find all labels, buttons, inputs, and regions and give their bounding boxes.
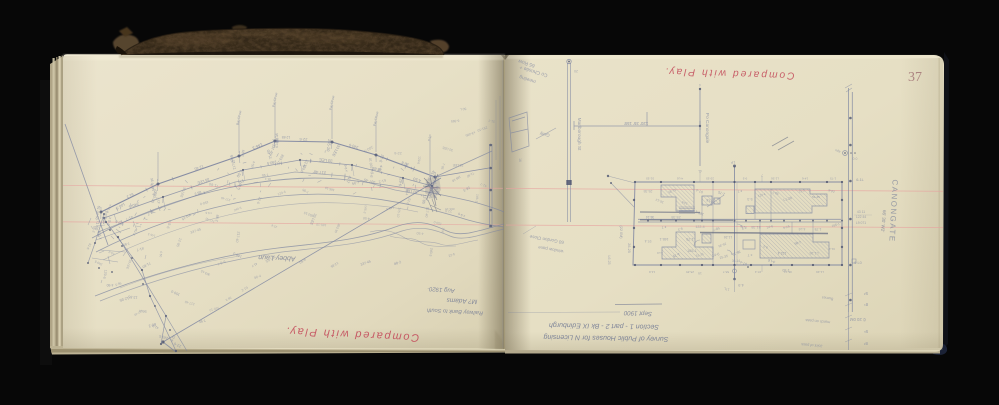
svg-text:L1-26: L1-26 bbox=[809, 251, 818, 255]
svg-text:1-75: 1-75 bbox=[814, 227, 821, 231]
svg-text:25-35: 25-35 bbox=[706, 177, 714, 181]
svg-text:16: 16 bbox=[518, 158, 522, 162]
svg-text:37: 37 bbox=[908, 70, 922, 85]
svg-text:165-1: 165-1 bbox=[687, 249, 697, 253]
svg-text:26-25: 26-25 bbox=[627, 243, 631, 253]
svg-text:25-35: 25-35 bbox=[686, 270, 694, 274]
svg-text:122-4: 122-4 bbox=[778, 251, 787, 255]
svg-text:L1-26: L1-26 bbox=[816, 270, 824, 274]
svg-text:x 7: x 7 bbox=[662, 225, 667, 229]
svg-text:31-2: 31-2 bbox=[829, 247, 835, 251]
svg-text:22·6: 22·6 bbox=[299, 137, 308, 142]
svg-text:8³: 8³ bbox=[864, 341, 868, 346]
svg-text:4-9: 4-9 bbox=[738, 283, 744, 287]
svg-text:L6 25: L6 25 bbox=[607, 256, 611, 265]
svg-text:51-35: 51-35 bbox=[812, 195, 820, 199]
svg-text:50 L: 50 L bbox=[460, 107, 467, 112]
svg-text:22·6: 22·6 bbox=[445, 209, 452, 214]
svg-text:51-35: 51-35 bbox=[646, 177, 654, 181]
svg-text:33 LEE: 33 LEE bbox=[452, 163, 463, 167]
svg-text:Sept 1900: Sept 1900 bbox=[623, 309, 652, 317]
svg-text:19: 19 bbox=[698, 271, 702, 275]
svg-text:120' 35' 155': 120' 35' 155' bbox=[624, 121, 649, 126]
svg-text:6-395: 6-395 bbox=[451, 119, 460, 124]
svg-text:1P: 1P bbox=[730, 160, 735, 164]
svg-text:5⁵: 5⁵ bbox=[864, 329, 868, 334]
svg-text:4-L6: 4-L6 bbox=[677, 177, 683, 181]
svg-text:4-L6: 4-L6 bbox=[799, 227, 806, 231]
svg-text:1·40: 1·40 bbox=[782, 268, 789, 272]
svg-text:96·4: 96·4 bbox=[265, 177, 271, 181]
svg-text:9-3: 9-3 bbox=[747, 197, 752, 201]
svg-text:4-L6: 4-L6 bbox=[657, 251, 663, 255]
svg-text:x 7: x 7 bbox=[738, 189, 742, 193]
svg-text:25-35: 25-35 bbox=[644, 189, 653, 193]
svg-text:122 44: 122 44 bbox=[856, 215, 866, 219]
svg-text:4: 4 bbox=[699, 83, 701, 87]
svg-text:58-7: 58-7 bbox=[723, 270, 729, 274]
svg-text:97-4: 97-4 bbox=[755, 270, 761, 274]
svg-text:122-4: 122-4 bbox=[695, 225, 704, 229]
svg-text:Marlborough St: Marlborough St bbox=[576, 118, 582, 151]
svg-text:6-1L: 6-1L bbox=[856, 178, 864, 182]
svg-text:L9 071: L9 071 bbox=[856, 221, 866, 225]
svg-text:25-35: 25-35 bbox=[671, 215, 680, 219]
svg-text:1-75: 1-75 bbox=[830, 177, 836, 181]
svg-text:4·50: 4·50 bbox=[416, 231, 423, 236]
svg-text:165-1: 165-1 bbox=[659, 237, 668, 241]
svg-text:22·6: 22·6 bbox=[394, 151, 402, 155]
svg-text:5³: 5³ bbox=[864, 291, 868, 296]
svg-text:12·85: 12·85 bbox=[282, 135, 291, 139]
svg-text:0 0: 0 0 bbox=[853, 157, 858, 161]
svg-text:(22 0M): (22 0M) bbox=[619, 225, 623, 239]
svg-text:14-6: 14-6 bbox=[649, 270, 655, 274]
svg-text:x 7: x 7 bbox=[748, 253, 753, 257]
svg-text:97-4: 97-4 bbox=[644, 239, 651, 243]
svg-text:Abbey Laun: Abbey Laun bbox=[258, 253, 297, 261]
svg-text:9-3: 9-3 bbox=[742, 177, 747, 181]
svg-text:36-14: 36-14 bbox=[732, 259, 740, 263]
svg-text:20: 20 bbox=[574, 69, 578, 73]
svg-text:L1-26: L1-26 bbox=[724, 235, 733, 239]
svg-text:51-35: 51-35 bbox=[751, 225, 760, 229]
svg-text:L1-26: L1-26 bbox=[771, 177, 779, 181]
svg-text:14-6: 14-6 bbox=[802, 177, 808, 181]
svg-text:Po Canongale: Po Canongale bbox=[704, 113, 710, 144]
svg-text:8⁹: 8⁹ bbox=[864, 302, 868, 307]
svg-text:© 20 0M: © 20 0M bbox=[850, 317, 866, 322]
svg-text:4·50: 4·50 bbox=[107, 283, 114, 287]
svg-text:x 9·6: x 9·6 bbox=[205, 211, 212, 216]
svg-text:1-75: 1-75 bbox=[686, 237, 694, 241]
svg-text:43 11: 43 11 bbox=[857, 210, 865, 214]
svg-text:4·50: 4·50 bbox=[363, 216, 370, 221]
svg-text:217·40: 217·40 bbox=[313, 169, 326, 175]
svg-text:36-14: 36-14 bbox=[646, 215, 654, 219]
